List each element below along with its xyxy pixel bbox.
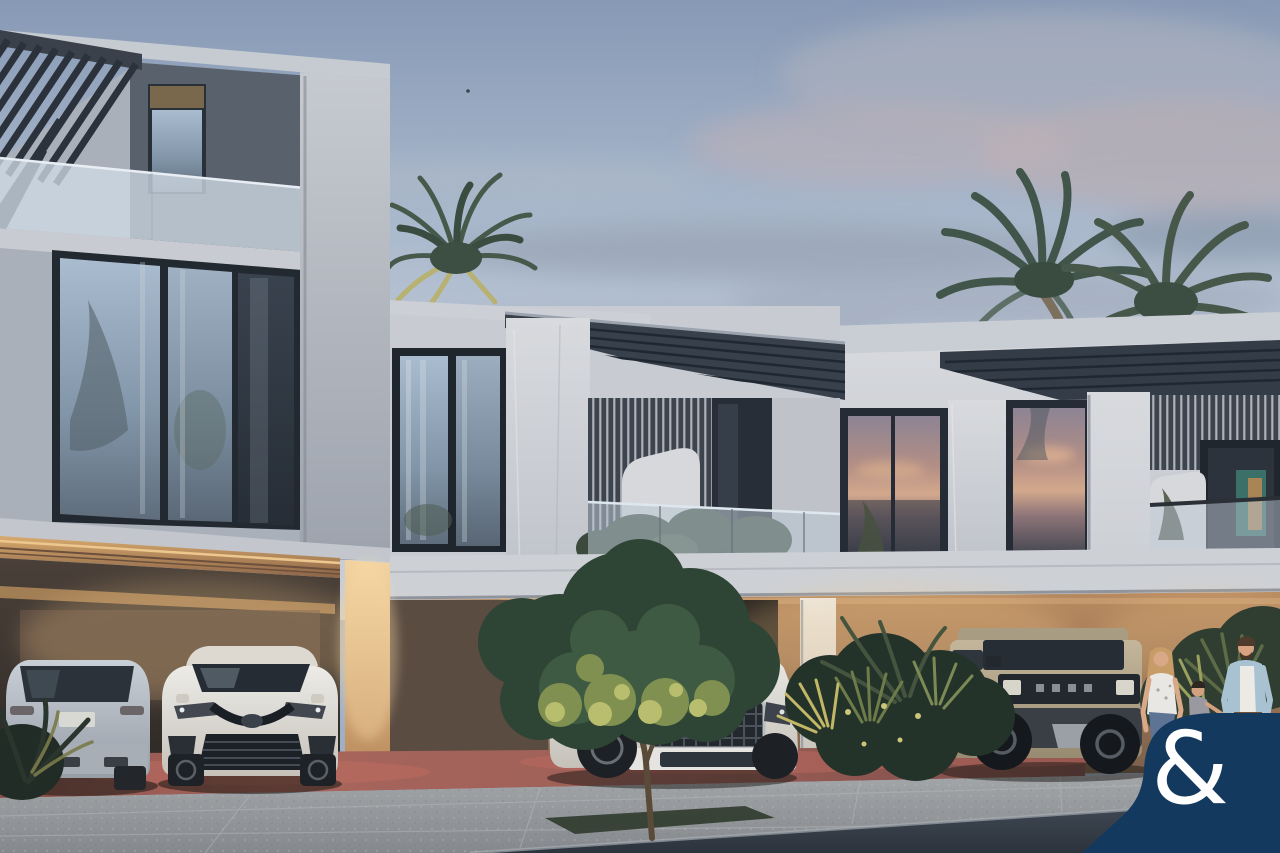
sunset-window-2 — [1006, 400, 1092, 566]
bird — [466, 89, 470, 93]
man-tshirt — [1240, 666, 1256, 716]
white-crossover — [158, 646, 342, 794]
sunset-window-1 — [840, 408, 948, 566]
marble-pier — [948, 400, 1006, 566]
master-window — [52, 250, 302, 530]
middle-townhouse — [388, 300, 845, 586]
property-photo: & — [0, 0, 1280, 853]
lit-pier — [338, 560, 398, 780]
right-pier — [300, 72, 390, 560]
bedroom-window — [392, 348, 506, 552]
ampersand-logo: & — [1151, 710, 1229, 827]
